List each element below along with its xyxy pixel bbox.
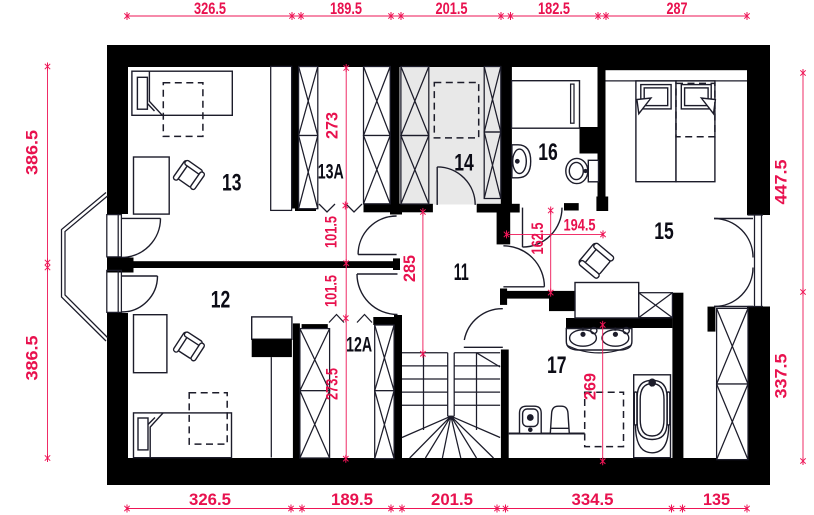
- svg-text:201.5: 201.5: [431, 491, 473, 509]
- svg-text:273.5: 273.5: [324, 368, 342, 400]
- svg-text:12: 12: [211, 287, 231, 314]
- svg-text:285: 285: [401, 255, 419, 282]
- svg-text:326.5: 326.5: [194, 0, 226, 18]
- svg-text:101.5: 101.5: [323, 275, 341, 307]
- svg-text:326.5: 326.5: [189, 491, 231, 509]
- svg-text:17: 17: [547, 352, 567, 379]
- svg-text:13A: 13A: [318, 161, 344, 184]
- svg-text:12A: 12A: [346, 334, 372, 357]
- svg-text:162.5: 162.5: [529, 223, 547, 255]
- svg-text:13: 13: [222, 170, 242, 197]
- svg-text:189.5: 189.5: [330, 0, 362, 18]
- svg-text:189.5: 189.5: [331, 491, 373, 509]
- svg-text:194.5: 194.5: [564, 217, 596, 235]
- svg-text:182.5: 182.5: [538, 0, 570, 18]
- svg-text:16: 16: [538, 139, 558, 166]
- svg-text:273: 273: [324, 112, 342, 139]
- svg-text:135: 135: [703, 491, 730, 509]
- svg-text:386.5: 386.5: [24, 336, 42, 381]
- svg-text:337.5: 337.5: [773, 354, 791, 399]
- svg-text:334.5: 334.5: [572, 491, 614, 509]
- svg-text:269: 269: [582, 373, 600, 400]
- svg-text:287: 287: [667, 0, 688, 18]
- svg-text:201.5: 201.5: [436, 0, 468, 18]
- svg-text:447.5: 447.5: [773, 160, 791, 205]
- svg-text:14: 14: [454, 150, 474, 177]
- svg-text:386.5: 386.5: [24, 130, 42, 175]
- svg-text:15: 15: [654, 218, 674, 245]
- svg-text:101.5: 101.5: [323, 216, 341, 248]
- svg-text:11: 11: [454, 259, 469, 286]
